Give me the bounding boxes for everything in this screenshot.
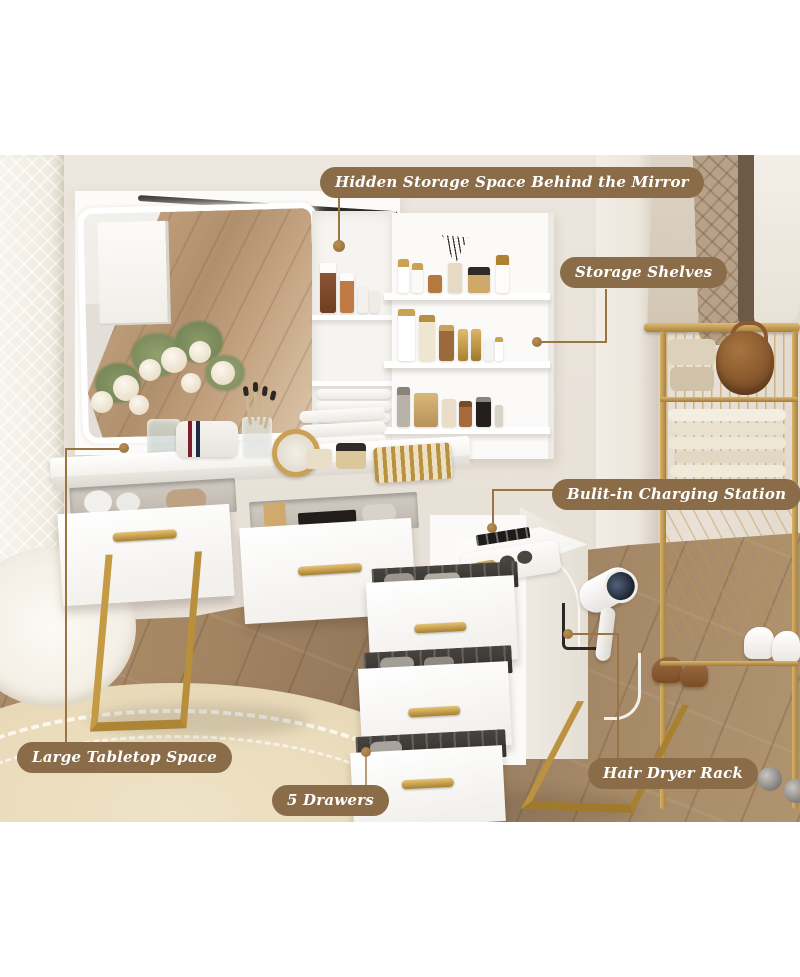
wall-corner	[596, 155, 656, 585]
pump-bottle	[419, 315, 435, 361]
hair-dryer-cord	[604, 653, 641, 720]
callout-label: Hidden Storage Space Behind the Mirror	[335, 173, 689, 191]
flower	[211, 361, 235, 385]
flower	[139, 359, 161, 381]
folded-item	[672, 423, 786, 435]
callout-label: Storage Shelves	[575, 263, 712, 281]
drawer-handle	[113, 529, 177, 542]
serum-bottle	[496, 255, 509, 293]
small-tube	[495, 337, 503, 361]
feature-dot	[532, 337, 542, 347]
feature-dot	[487, 523, 497, 533]
product-infographic: NOIR Hidden Sto	[0, 0, 800, 977]
perfume-bottle	[397, 387, 410, 427]
caster-wheel	[758, 767, 782, 791]
hidden-storage-compartment	[312, 211, 396, 427]
callout-five-drawers: 5 Drawers	[272, 785, 389, 816]
flower	[129, 395, 149, 415]
diffuser-sticks	[442, 235, 468, 265]
powder-jar	[306, 449, 332, 469]
leader-line	[605, 289, 607, 343]
room-photo: NOIR Hidden Sto	[0, 155, 800, 822]
amber-bottle	[439, 325, 454, 361]
drawer-handle	[298, 563, 362, 576]
basket-rail	[660, 397, 798, 402]
folded-item	[674, 451, 786, 463]
callout-label: Large Tabletop Space	[32, 748, 217, 766]
amber-dropper	[459, 401, 472, 427]
small-tube	[484, 339, 493, 361]
leader-line	[573, 633, 619, 635]
callout-hidden-storage: Hidden Storage Space Behind the Mirror	[320, 167, 704, 198]
feature-dot	[333, 240, 345, 252]
lipstick-tray	[373, 442, 453, 483]
gold-storage-cart	[660, 331, 798, 817]
brown-shoe	[680, 663, 708, 687]
flower	[91, 391, 113, 413]
drawer-handle	[402, 778, 454, 790]
leader-line	[65, 448, 67, 742]
leader-line	[617, 633, 619, 759]
storage-shelf-unit	[392, 213, 554, 459]
feature-dot	[361, 747, 371, 757]
folded-item	[670, 465, 786, 477]
sunglasses-lens	[516, 550, 533, 565]
callout-label: Bulit-in Charging Station	[567, 485, 786, 503]
flower	[189, 341, 211, 363]
caster-wheel	[784, 779, 800, 803]
drawer-handle	[408, 706, 460, 718]
flower	[181, 373, 201, 393]
clear-bottle	[495, 405, 503, 427]
gold-spray	[458, 329, 468, 361]
leader-line	[540, 341, 607, 343]
makeup-brush	[254, 391, 257, 421]
gold-spray	[471, 329, 481, 361]
white-shirt	[754, 155, 800, 327]
gold-table-leg	[90, 551, 202, 731]
leader-line	[492, 489, 494, 525]
makeup-bag	[176, 421, 238, 457]
callout-label: Hair Dryer Rack	[603, 764, 743, 782]
callout-hair-dryer-rack: Hair Dryer Rack	[588, 758, 758, 789]
shelf-board	[384, 427, 550, 434]
leader-line	[492, 489, 554, 491]
white-sneaker	[744, 627, 774, 659]
diffuser-bottle	[448, 263, 462, 293]
flower	[161, 347, 187, 373]
bottom-rail	[660, 661, 798, 666]
callout-label: 5 Drawers	[287, 791, 374, 809]
brush-cup	[242, 417, 272, 459]
feature-dot	[119, 443, 129, 453]
small-bottle	[358, 287, 368, 313]
leather-bag	[716, 331, 774, 395]
gold-perfume	[414, 393, 438, 427]
feature-dot	[563, 629, 573, 639]
bag-stripe	[188, 421, 200, 457]
cream-bottle	[442, 399, 456, 427]
amber-jar	[428, 275, 442, 293]
cart-post	[792, 331, 798, 809]
folded-cloth	[668, 339, 716, 365]
leader-line	[66, 448, 122, 450]
leader-line	[338, 197, 340, 245]
cubby-shelf	[312, 381, 396, 386]
shelf-wires	[666, 489, 792, 639]
folded-clothes-stack	[668, 409, 786, 479]
towel	[317, 389, 391, 399]
folded-item	[668, 409, 786, 421]
callout-charging-station: Bulit-in Charging Station	[552, 479, 800, 510]
cream-jar	[468, 267, 490, 293]
pump-bottle	[398, 309, 415, 361]
cosmetic-bottle	[412, 263, 423, 293]
cosmetic-bottle	[398, 259, 409, 293]
callout-storage-shelves: Storage Shelves	[560, 257, 727, 288]
small-bottle	[370, 291, 379, 313]
white-sneaker	[772, 631, 800, 663]
powder-jar-black-lid	[336, 443, 366, 469]
cubby-shelf	[312, 315, 396, 320]
callout-large-tabletop: Large Tabletop Space	[17, 742, 232, 773]
serum-bottle	[340, 273, 354, 313]
shelf-board	[384, 293, 550, 300]
black-perfume	[476, 397, 491, 427]
serum-bottle	[320, 263, 336, 313]
drawer-handle	[414, 622, 466, 634]
folded-item	[668, 437, 786, 449]
shelf-board	[384, 361, 550, 368]
folded-cloth	[670, 367, 714, 391]
